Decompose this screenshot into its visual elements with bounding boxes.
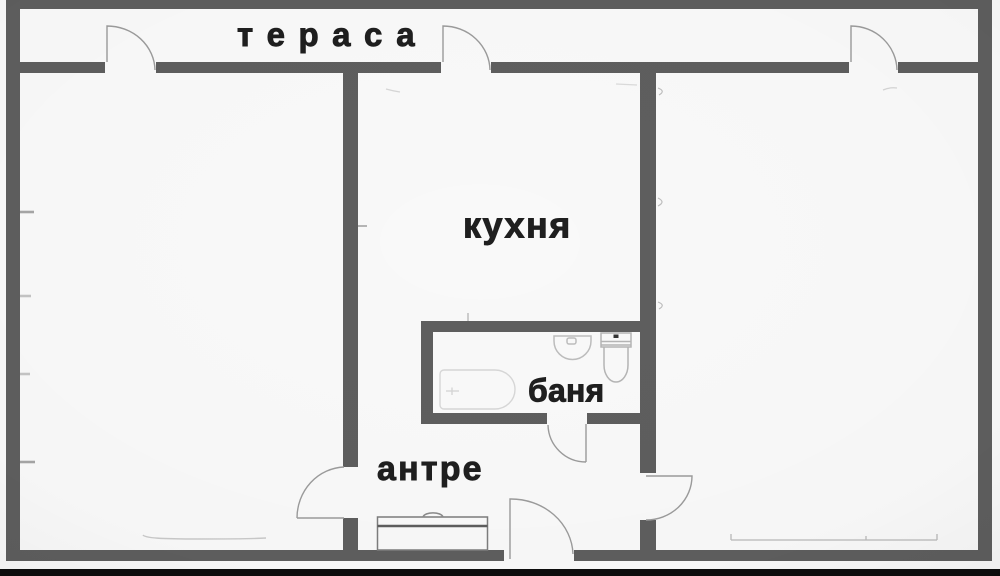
svg-text:антре: антре: [377, 450, 484, 488]
svg-text:тераса: тераса: [237, 16, 428, 53]
svg-text:баня: баня: [528, 373, 604, 409]
svg-text:кухня: кухня: [463, 205, 572, 246]
